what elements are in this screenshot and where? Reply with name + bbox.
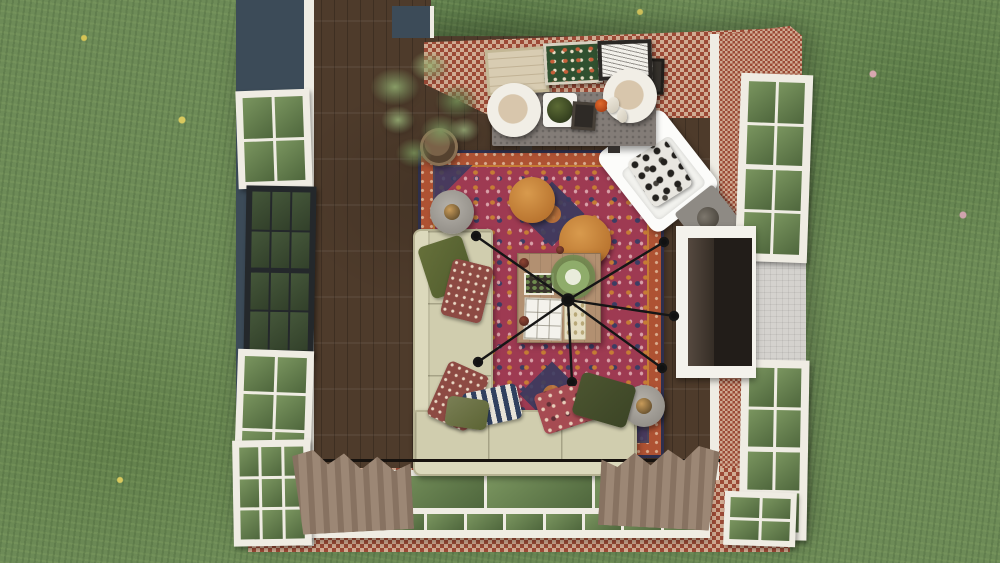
glass-pane xyxy=(729,519,758,539)
glass-pane xyxy=(275,395,306,431)
decor-bowl xyxy=(636,398,652,414)
glass-pane xyxy=(251,231,270,269)
glass-pane xyxy=(272,192,291,230)
interior-wall-stub xyxy=(392,6,434,38)
glass-pane xyxy=(747,451,772,490)
table-lamp-left[interactable] xyxy=(487,83,541,137)
glass-pane xyxy=(746,125,774,167)
console-leg xyxy=(608,146,620,153)
glass-pane xyxy=(274,96,304,137)
glass-pane xyxy=(745,169,773,211)
glass-pane xyxy=(777,82,805,124)
glass-pane xyxy=(250,311,269,349)
decor-object xyxy=(444,204,460,220)
glass-pane xyxy=(292,192,311,230)
glass-pane xyxy=(263,510,283,539)
pouf-orange-1[interactable] xyxy=(509,177,555,223)
glass-pane xyxy=(270,272,289,310)
window-left-top[interactable] xyxy=(235,89,312,190)
glass-pane xyxy=(776,410,801,449)
glass-pane xyxy=(427,514,463,530)
glass-pane xyxy=(290,272,309,310)
glass-pane xyxy=(276,139,306,180)
room-render-viewport xyxy=(0,0,1000,563)
window-left-middle[interactable] xyxy=(244,185,317,356)
glass-pane xyxy=(244,356,275,392)
glass-pane xyxy=(761,521,790,541)
glass-pane xyxy=(276,357,307,393)
glass-pane xyxy=(271,232,290,270)
glass-pane xyxy=(774,170,802,212)
decor-photo-frame[interactable] xyxy=(571,101,597,131)
glass-pane xyxy=(240,511,260,540)
glass-pane xyxy=(776,126,804,168)
window-glass xyxy=(729,497,790,541)
glass-pane xyxy=(775,452,800,491)
fireplace-firebox xyxy=(714,238,752,366)
glass-pane xyxy=(748,409,773,448)
glass-pane xyxy=(762,498,791,518)
glass-pane xyxy=(776,368,801,407)
pillow-olive-small[interactable] xyxy=(444,395,490,431)
glass-pane xyxy=(291,232,310,270)
glass-pane xyxy=(262,447,282,476)
glass-pane xyxy=(772,213,800,255)
potted-plant[interactable] xyxy=(354,42,486,174)
glass-pane xyxy=(239,447,259,476)
glass-pane xyxy=(290,312,309,350)
chandelier[interactable] xyxy=(466,220,680,386)
artwork-botanical[interactable] xyxy=(543,41,603,86)
glass-pane xyxy=(240,479,260,508)
table-lamp-right[interactable] xyxy=(603,69,657,123)
glass-pane xyxy=(487,476,592,508)
window-glass xyxy=(243,96,306,182)
glass-pane xyxy=(546,514,582,530)
tv-screen[interactable] xyxy=(688,238,714,366)
glass-pane xyxy=(748,81,776,123)
window-corner-bottom-right[interactable] xyxy=(723,491,797,547)
glass-pane xyxy=(242,394,273,430)
glass-pane xyxy=(506,514,542,530)
glass-pane xyxy=(244,141,274,182)
glass-pane xyxy=(730,497,759,517)
console-leg xyxy=(520,146,532,153)
glass-pane xyxy=(262,478,282,507)
glass-pane xyxy=(252,192,271,230)
plant-foliage xyxy=(354,42,486,174)
glass-pane xyxy=(243,97,273,138)
glass-pane xyxy=(270,312,289,350)
glass-pane xyxy=(250,271,269,309)
glass-pane xyxy=(467,514,503,530)
